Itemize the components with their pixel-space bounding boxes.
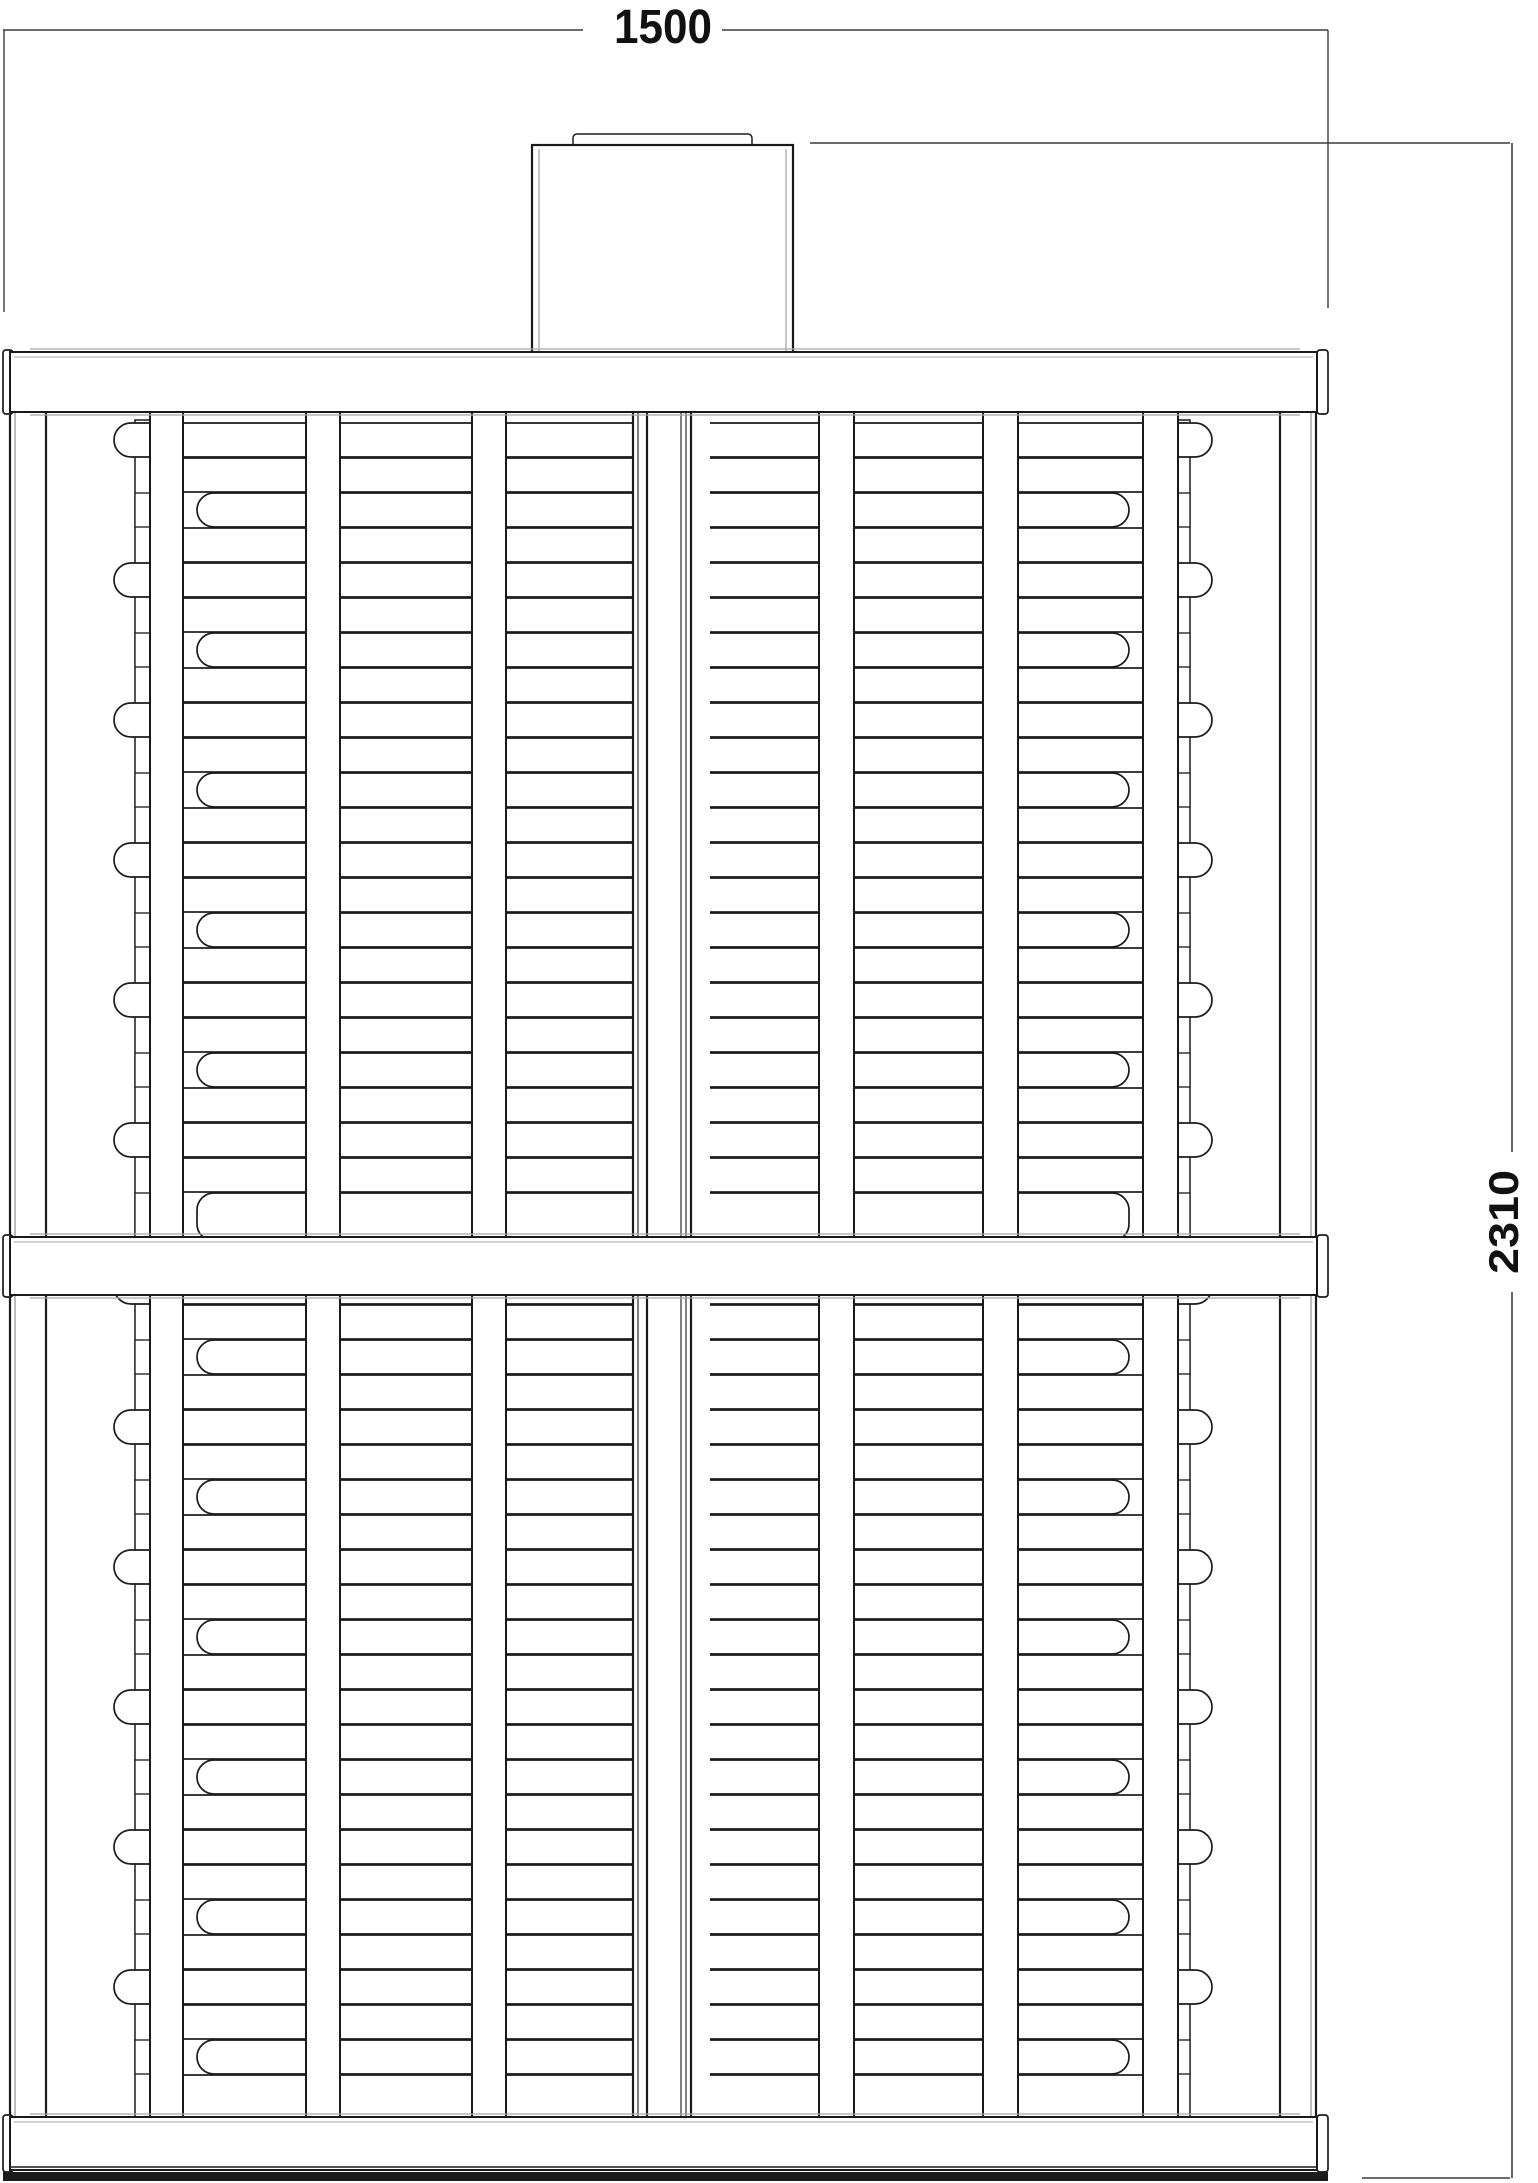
beam-end-cap xyxy=(1317,1235,1328,1297)
vertical-slat xyxy=(150,1295,183,2117)
vertical-slat xyxy=(1143,1295,1178,2117)
rod-joint-tick xyxy=(135,1760,150,1794)
rod-joint-tick xyxy=(135,913,150,947)
vertical-slat xyxy=(306,412,340,1237)
top-mount-box xyxy=(532,134,793,354)
vertical-slat xyxy=(819,412,854,1237)
rack-elevation-drawing: 15002310 xyxy=(0,0,1538,2183)
beam-end-cap xyxy=(1317,2115,1328,2172)
tier-lower xyxy=(10,1270,1316,2121)
technical-drawing-page: 15002310 xyxy=(0,0,1538,2183)
rod-joint-tick xyxy=(135,1340,150,1374)
rod-joint-tick xyxy=(135,633,150,667)
left-post xyxy=(10,1295,46,2117)
rod-joint-tick xyxy=(135,1620,150,1654)
bottom-beam xyxy=(3,2114,1328,2181)
rod-joint-tick xyxy=(135,1900,150,1934)
height-dimension-label: 2310 xyxy=(1480,1170,1527,1274)
left-end-rod xyxy=(135,420,150,1237)
right-post xyxy=(1280,412,1316,1237)
beam-end-cap xyxy=(1317,350,1328,414)
base-edge-band xyxy=(3,2172,1328,2181)
rod-joint-tick xyxy=(135,773,150,807)
top-beam xyxy=(3,349,1328,415)
vertical-slat xyxy=(983,1295,1018,2117)
middle-beam xyxy=(3,1234,1328,1298)
vertical-slat xyxy=(150,412,183,1237)
vertical-slat xyxy=(983,412,1018,1237)
vertical-slat xyxy=(819,1295,854,2117)
vertical-slat xyxy=(472,1295,506,2117)
center-mast xyxy=(633,1295,710,2117)
vertical-slat xyxy=(306,1295,340,2117)
right-post xyxy=(1280,1295,1316,2117)
left-post xyxy=(10,412,46,1237)
vertical-slat xyxy=(472,412,506,1237)
vertical-slat xyxy=(1143,412,1178,1237)
rod-joint-tick xyxy=(135,1480,150,1514)
rod-joint-tick xyxy=(135,493,150,527)
width-dimension-label: 1500 xyxy=(614,1,712,54)
tier-upper xyxy=(10,412,1316,1241)
rod-joint-tick xyxy=(135,1053,150,1087)
center-mast xyxy=(633,412,710,1237)
rod-joint-tick xyxy=(135,2040,150,2074)
